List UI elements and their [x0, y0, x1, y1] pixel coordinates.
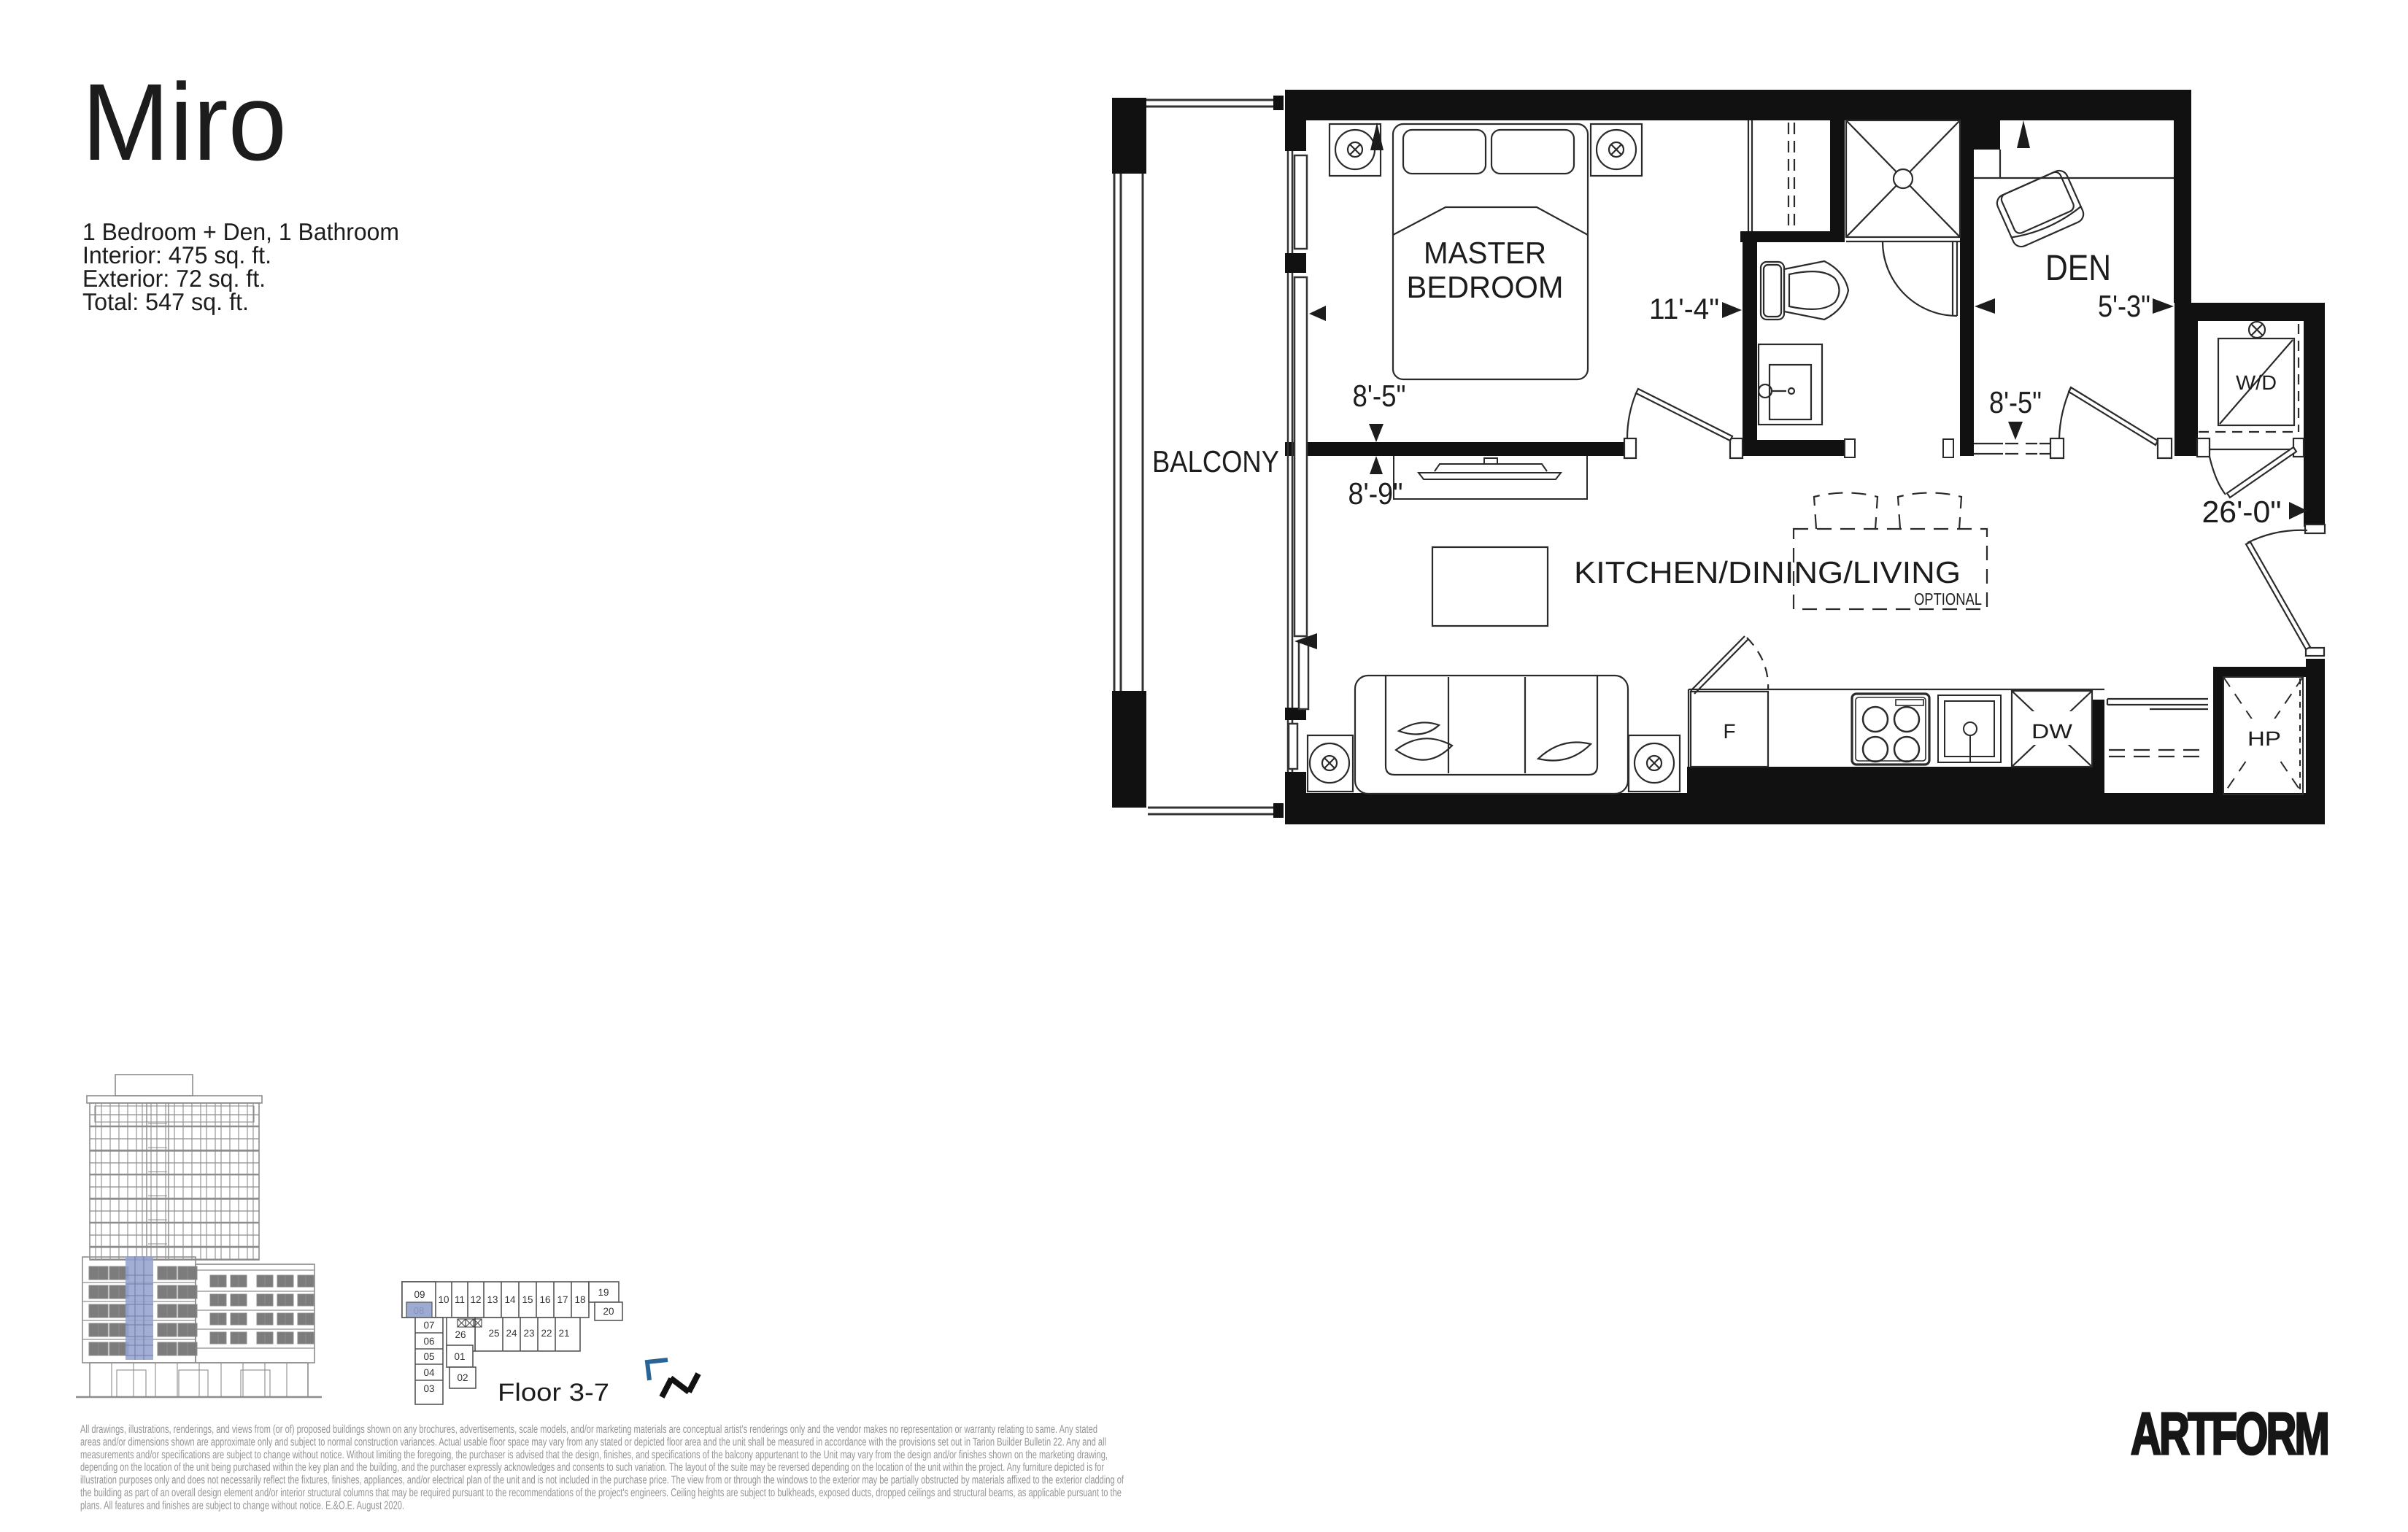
- svg-text:5'-3": 5'-3": [2098, 289, 2150, 323]
- svg-text:11'-4": 11'-4": [1649, 293, 1719, 325]
- svg-text:16: 16: [539, 1294, 550, 1305]
- svg-text:plans. All features and finish: plans. All features and finishes are sub…: [80, 1499, 404, 1512]
- svg-text:13: 13: [487, 1294, 498, 1305]
- svg-text:09: 09: [414, 1289, 425, 1300]
- svg-text:BEDROOM: BEDROOM: [1407, 270, 1564, 304]
- svg-text:07: 07: [423, 1320, 434, 1331]
- svg-text:08: 08: [414, 1305, 424, 1316]
- svg-text:Miro: Miro: [82, 61, 287, 183]
- svg-text:23: 23: [523, 1328, 534, 1339]
- svg-text:15: 15: [522, 1294, 533, 1305]
- svg-text:14: 14: [504, 1294, 516, 1305]
- svg-text:ARTFORM: ARTFORM: [2131, 1401, 2328, 1467]
- svg-text:OPTIONAL: OPTIONAL: [1914, 589, 1982, 608]
- svg-text:DW: DW: [2031, 720, 2073, 743]
- svg-text:areas and/or dimensions shown: areas and/or dimensions shown are approx…: [80, 1436, 1106, 1448]
- svg-text:F: F: [1723, 720, 1735, 743]
- svg-text:26: 26: [455, 1329, 466, 1340]
- svg-text:8'-5": 8'-5": [1989, 385, 2042, 419]
- svg-text:KITCHEN/DINING/LIVING: KITCHEN/DINING/LIVING: [1574, 555, 1961, 589]
- svg-text:21: 21: [558, 1328, 569, 1339]
- svg-text:02: 02: [457, 1372, 468, 1383]
- svg-text:05: 05: [423, 1351, 434, 1362]
- svg-text:MASTER: MASTER: [1424, 236, 1546, 270]
- svg-text:All drawings, illustrations, r: All drawings, illustrations, renderings,…: [80, 1423, 1097, 1436]
- svg-text:Total: 547 sq. ft.: Total: 547 sq. ft.: [82, 288, 249, 315]
- svg-text:18: 18: [574, 1294, 585, 1305]
- svg-text:06: 06: [423, 1336, 434, 1347]
- svg-text:8'-5": 8'-5": [1353, 379, 1406, 413]
- svg-text:measurements and/or specificat: measurements and/or specifications are s…: [80, 1449, 1108, 1461]
- svg-text:26'-0": 26'-0": [2202, 495, 2282, 529]
- svg-text:W/D: W/D: [2236, 371, 2277, 394]
- svg-text:HP: HP: [2247, 727, 2281, 750]
- svg-text:11: 11: [455, 1294, 465, 1305]
- svg-text:Floor 3-7: Floor 3-7: [498, 1379, 609, 1407]
- svg-text:22: 22: [541, 1328, 552, 1339]
- svg-text:01: 01: [454, 1351, 465, 1362]
- svg-text:DEN: DEN: [2045, 247, 2111, 288]
- svg-text:depending on the location of t: depending on the location of the unit be…: [80, 1461, 1104, 1474]
- svg-text:17: 17: [557, 1294, 568, 1305]
- svg-text:19: 19: [598, 1287, 609, 1298]
- svg-text:25: 25: [488, 1328, 499, 1339]
- svg-text:12: 12: [470, 1294, 481, 1305]
- svg-text:illustration purposes only and: illustration purposes only and does not …: [80, 1474, 1124, 1487]
- svg-text:24: 24: [506, 1328, 517, 1339]
- svg-text:8'-9": 8'-9": [1348, 476, 1403, 511]
- svg-text:03: 03: [423, 1383, 434, 1394]
- svg-text:BALCONY: BALCONY: [1152, 444, 1279, 479]
- svg-text:04: 04: [423, 1367, 435, 1378]
- svg-text:20: 20: [603, 1306, 614, 1317]
- svg-text:the building as part of an ove: the building as part of an overall desig…: [80, 1487, 1122, 1499]
- svg-text:10: 10: [438, 1294, 449, 1305]
